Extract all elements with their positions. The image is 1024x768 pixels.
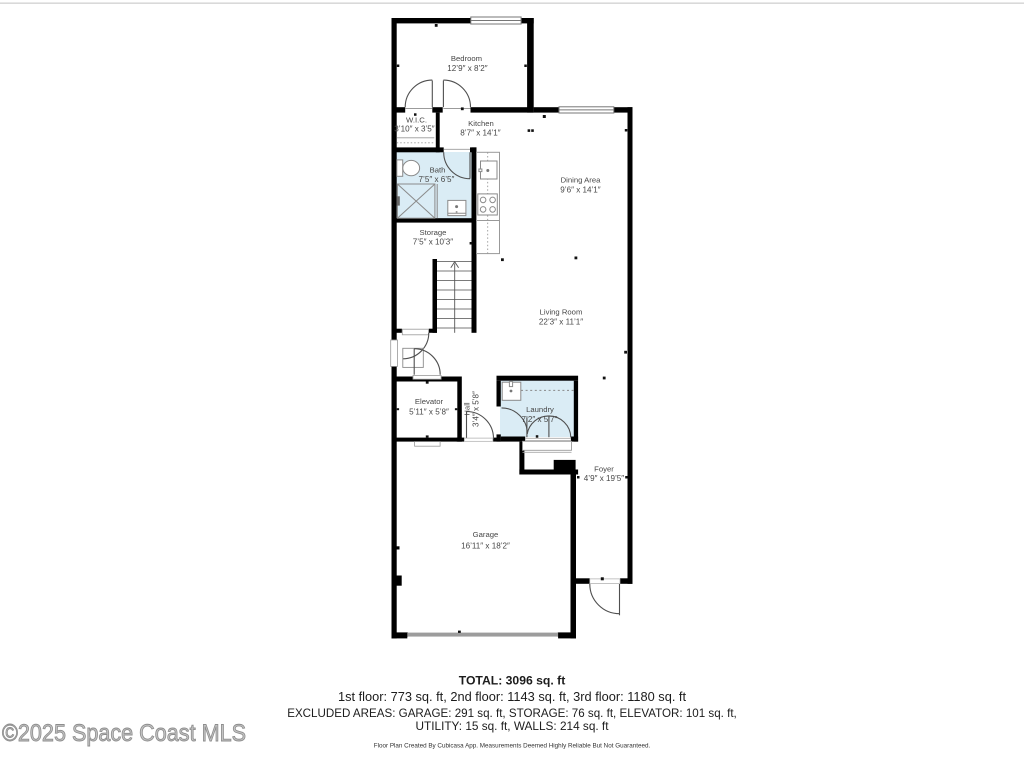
svg-text:9’6″ x 14’1″: 9’6″ x 14’1″ [560,185,601,194]
svg-text:UTILITY: 15 sq. ft, WALLS: 214: UTILITY: 15 sq. ft, WALLS: 214 sq. ft [416,719,610,733]
svg-text:16’11″ x 18’2″: 16’11″ x 18’2″ [461,542,510,551]
svg-text:Hall: Hall [462,402,471,416]
svg-text:1st floor: 773 sq. ft, 2nd flo: 1st floor: 773 sq. ft, 2nd floor: 1143 s… [338,689,687,704]
svg-text:©2025 Space Coast MLS: ©2025 Space Coast MLS [2,720,246,747]
svg-text:W.I.C.: W.I.C. [406,116,427,125]
svg-text:7’5″ x 6’5″: 7’5″ x 6’5″ [419,175,455,184]
svg-text:4’9″ x 19’5″: 4’9″ x 19’5″ [584,474,625,483]
svg-text:Storage: Storage [420,228,447,237]
svg-text:3’10″ x 3’5″: 3’10″ x 3’5″ [394,125,435,134]
svg-text:12’9″ x 8’2″: 12’9″ x 8’2″ [447,64,488,73]
svg-text:Floor Plan Created By Cubicasa: Floor Plan Created By Cubicasa App. Meas… [374,743,651,750]
svg-text:Bath: Bath [430,166,446,175]
svg-text:22’3″ x 11’1″: 22’3″ x 11’1″ [539,318,583,327]
svg-text:Dining Area: Dining Area [561,176,601,185]
svg-text:Bedroom: Bedroom [451,54,482,63]
svg-text:Elevator: Elevator [415,397,444,406]
svg-text:5’11″ x 5’8″: 5’11″ x 5’8″ [409,407,449,416]
svg-text:7’2″ x 5’7″: 7’2″ x 5’7″ [522,415,558,424]
svg-text:8’7″ x 14’1″: 8’7″ x 14’1″ [460,129,501,138]
svg-text:Laundry: Laundry [526,405,554,414]
svg-text:TOTAL: 3096 sq. ft: TOTAL: 3096 sq. ft [459,674,566,688]
svg-text:Garage: Garage [473,530,499,539]
svg-text:7’5″ x 10’3″: 7’5″ x 10’3″ [413,238,454,247]
svg-text:Kitchen: Kitchen [468,119,494,128]
svg-text:Living Room: Living Room [540,308,583,317]
svg-text:Foyer: Foyer [594,465,614,474]
svg-text:3’4″ x 5’8″: 3’4″ x 5’8″ [472,391,481,427]
